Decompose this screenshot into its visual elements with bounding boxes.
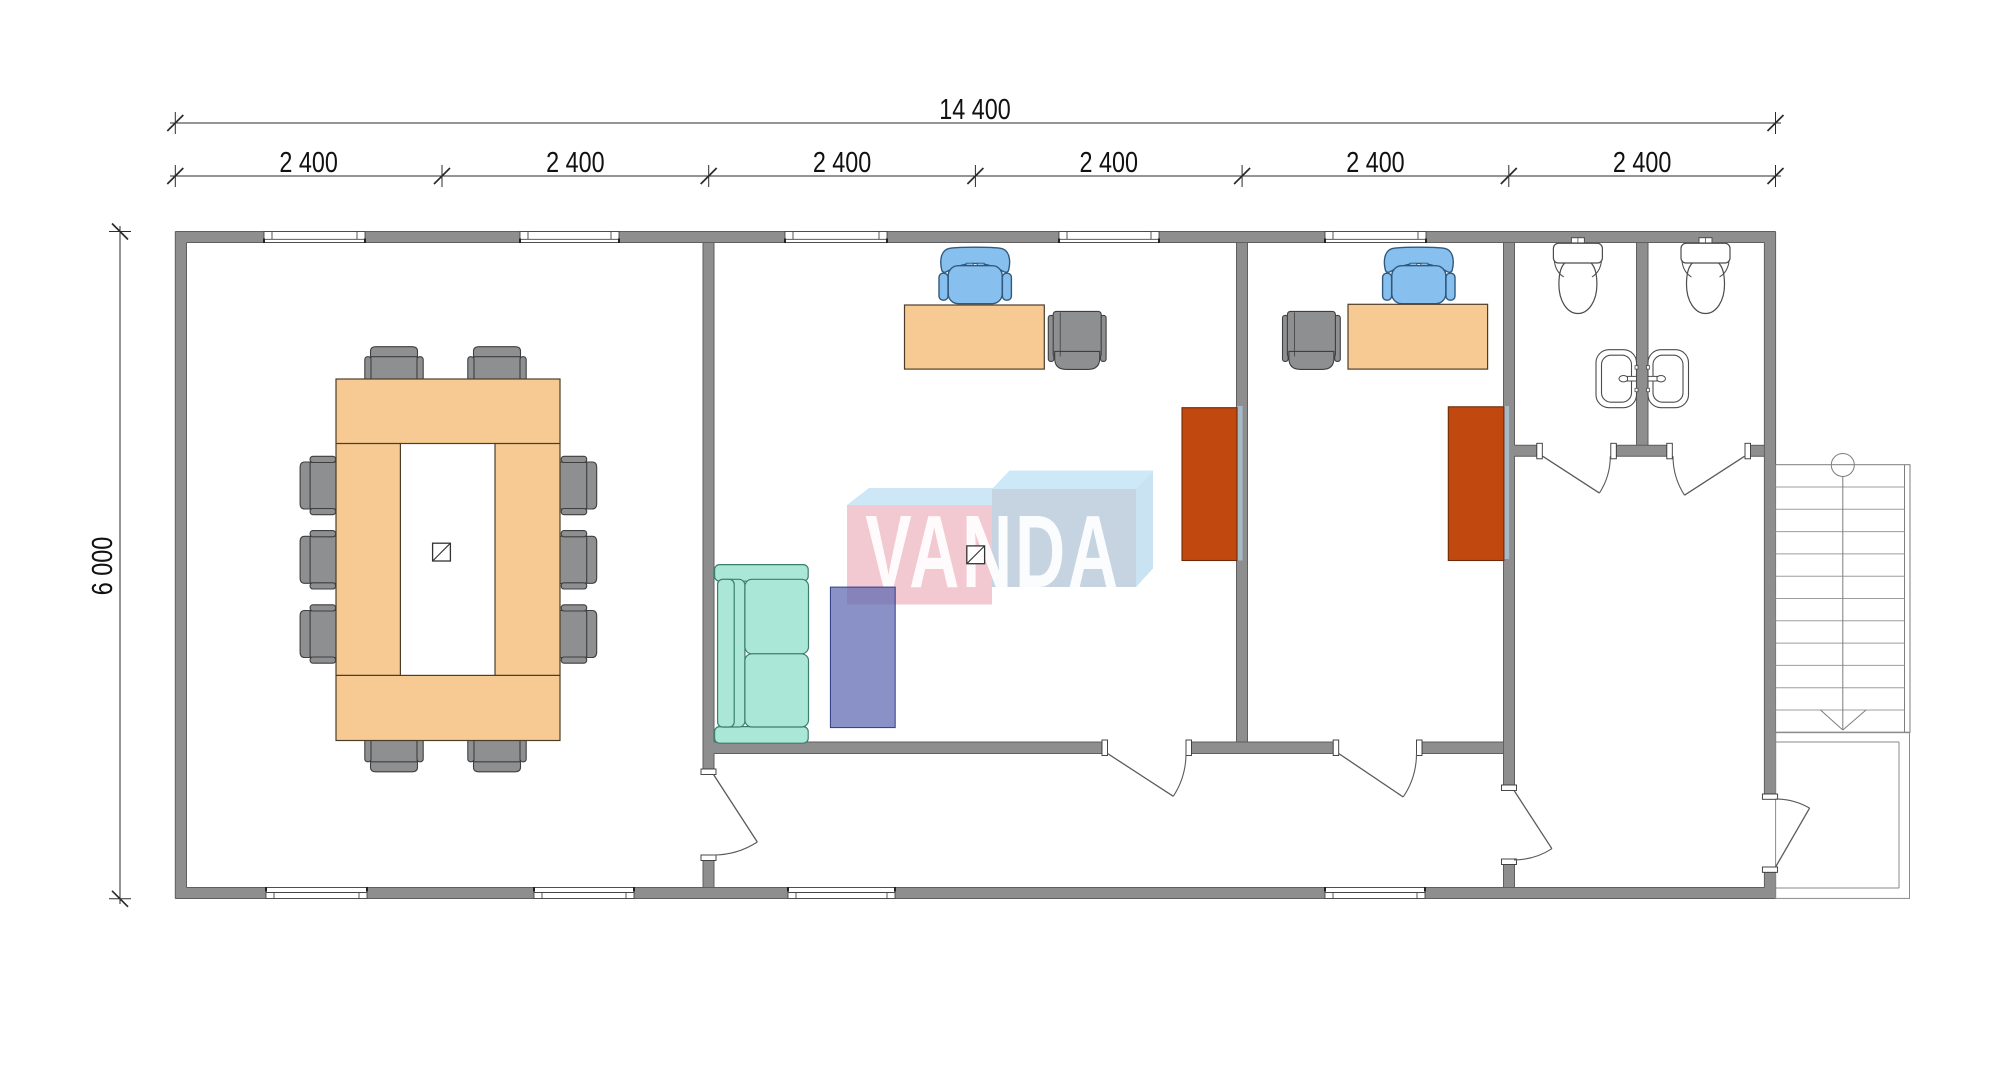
svg-text:2 400: 2 400: [1080, 146, 1138, 179]
svg-text:2 400: 2 400: [279, 146, 337, 179]
svg-text:6 000: 6 000: [86, 537, 119, 595]
svg-text:2 400: 2 400: [1346, 146, 1404, 179]
svg-text:VANDA: VANDA: [865, 493, 1121, 609]
svg-text:14 400: 14 400: [939, 93, 1010, 126]
svg-text:2 400: 2 400: [813, 146, 871, 179]
svg-text:2 400: 2 400: [1613, 146, 1671, 179]
svg-text:2 400: 2 400: [546, 146, 604, 179]
